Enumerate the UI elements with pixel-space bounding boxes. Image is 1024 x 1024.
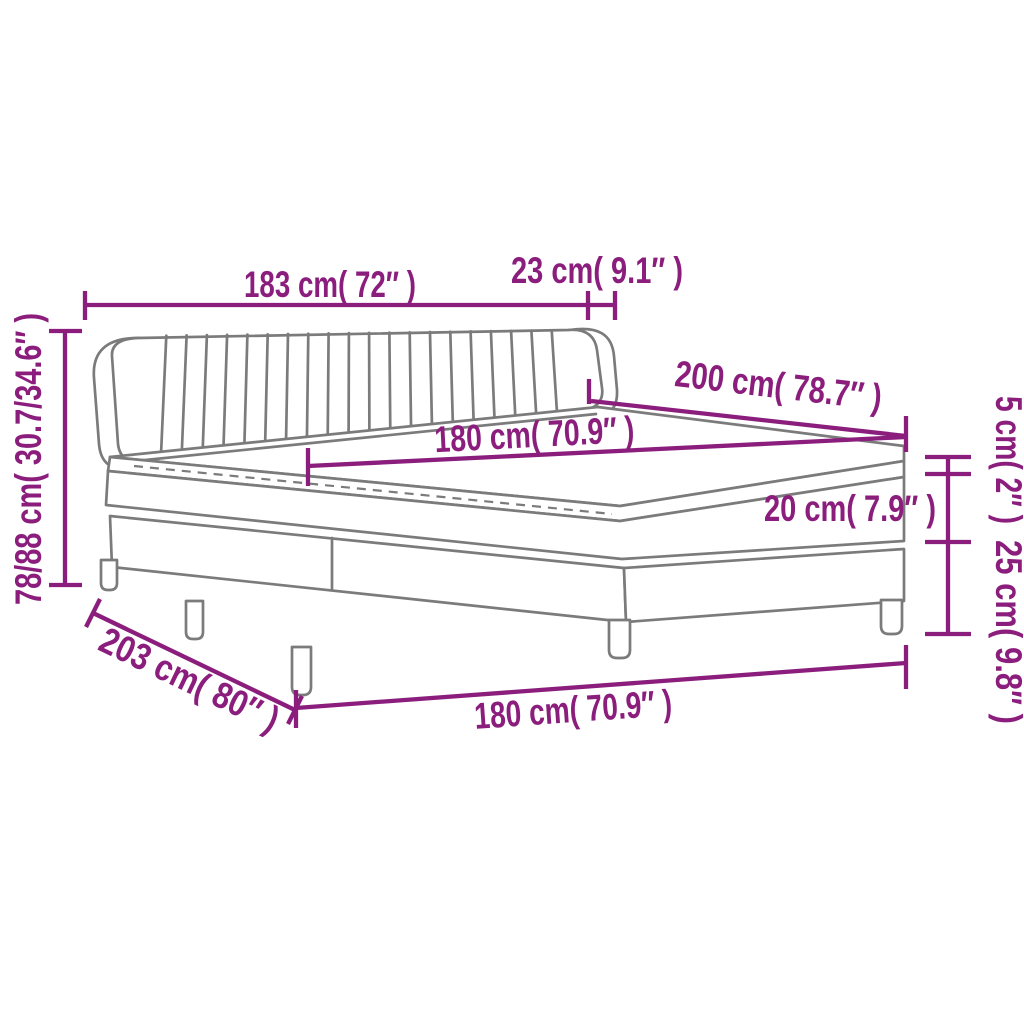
dim-label-headboard-width: 183 cm( 72″ ) (244, 264, 416, 305)
dim-label-mattress-thickness: 20 cm( 7.9″ ) (764, 488, 936, 529)
dim-total-height: 78/88 cm( 30.7/34.6″ ) (8, 313, 82, 605)
tufting-line (389, 333, 390, 433)
bed-dimension-diagram-page: 183 cm( 72″ ) 23 cm( 9.1″ ) 78/88 cm( 30… (0, 0, 1024, 1024)
box-spring-foot-face (624, 549, 904, 622)
bed-dimension-diagram: 183 cm( 72″ ) 23 cm( 9.1″ ) 78/88 cm( 30… (0, 0, 1024, 1024)
dim-label-base-width: 180 cm( 70.9″ ) (473, 682, 673, 737)
bed-leg-front-left (101, 560, 117, 590)
tufting-line (328, 333, 329, 439)
tufting-line (410, 332, 411, 430)
dim-headboard-width: 183 cm( 72″ ) 23 cm( 9.1″ ) (85, 250, 683, 320)
dim-label-headboard-side-depth: 23 cm( 9.1″ ) (511, 250, 683, 291)
bed-leg-front-right (881, 600, 902, 634)
dim-label-base-and-leg-height: 25 cm( 9.8″ ) (988, 540, 1024, 724)
dim-label-bed-length: 200 cm( 78.7″ ) (673, 353, 884, 418)
bed-leg-back-1 (186, 601, 203, 639)
dim-base-width: 180 cm( 70.9″ ) (296, 645, 906, 737)
dim-label-total-height: 78/88 cm( 30.7/34.6″ ) (8, 313, 49, 605)
bed-leg-front-corner (609, 620, 630, 658)
tufting-line (307, 334, 308, 441)
bed-leg-back-2 (292, 647, 311, 695)
dim-label-topper-thickness: 5 cm( 2″ ) (988, 396, 1024, 524)
